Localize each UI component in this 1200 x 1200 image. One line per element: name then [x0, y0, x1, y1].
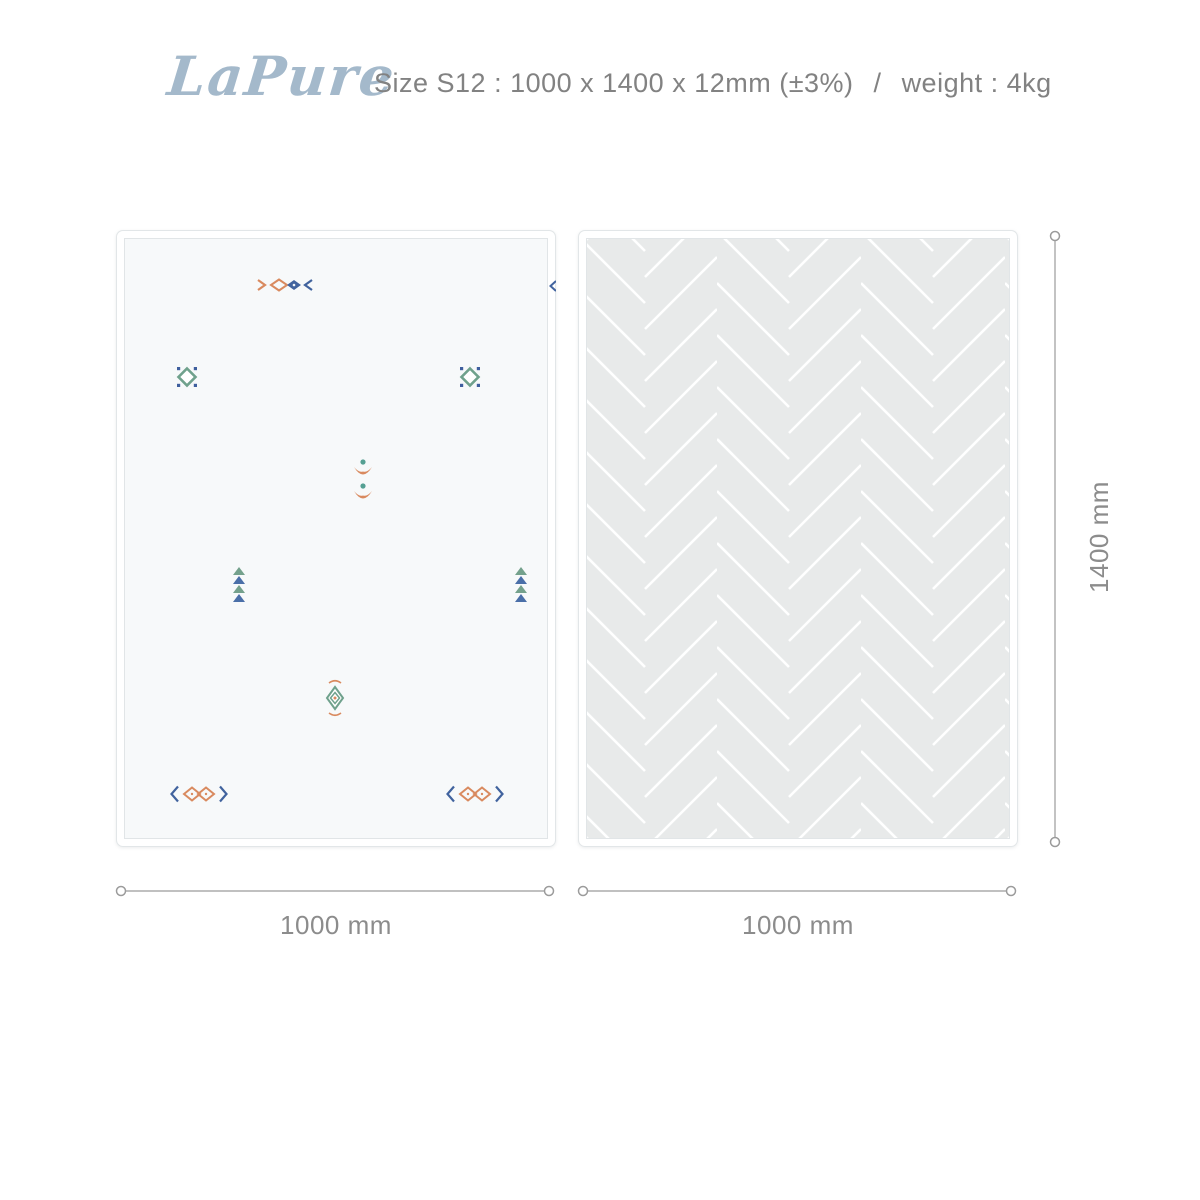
motif-partial-fish-icon: [549, 279, 556, 293]
spec-separator: /: [874, 66, 882, 100]
height-dimension-label: 1400 mm: [1085, 457, 1113, 617]
motif-concentric-diamond-icon: [322, 678, 348, 718]
motif-bird-flower-icon: [352, 459, 374, 507]
herringbone-pattern: [587, 239, 1009, 838]
mat-front-preview: [116, 230, 556, 847]
motif-bracket-diamonds-icon: [168, 783, 230, 805]
size-spec-text: Size S12 : 1000 x 1400 x 12mm (±3%): [374, 68, 854, 98]
motif-diamond-dots-icon: [457, 364, 483, 390]
width-dimension-label-left: 1000 mm: [116, 910, 556, 941]
product-spec-sheet: { "header": { "brand": "LaPure", "size_l…: [0, 0, 1200, 1200]
motif-triangle-stack-icon: [514, 566, 528, 606]
height-dimension-line: [1047, 228, 1063, 850]
motif-diamond-dots-icon: [174, 364, 200, 390]
width-dimension-line-left: [115, 883, 555, 899]
weight-spec-text: weight : 4kg: [902, 68, 1052, 98]
width-dimension-line-right: [577, 883, 1017, 899]
width-dimension-label-right: 1000 mm: [578, 910, 1018, 941]
motif-triangle-stack-icon: [232, 566, 246, 606]
mat-back-preview: [578, 230, 1018, 847]
motif-fish-diamonds-icon: [255, 277, 315, 293]
motif-bracket-diamonds-icon: [444, 783, 506, 805]
brand-logo: LaPure: [164, 36, 352, 116]
spec-line: Size S12 : 1000 x 1400 x 12mm (±3%)/weig…: [374, 66, 1052, 100]
